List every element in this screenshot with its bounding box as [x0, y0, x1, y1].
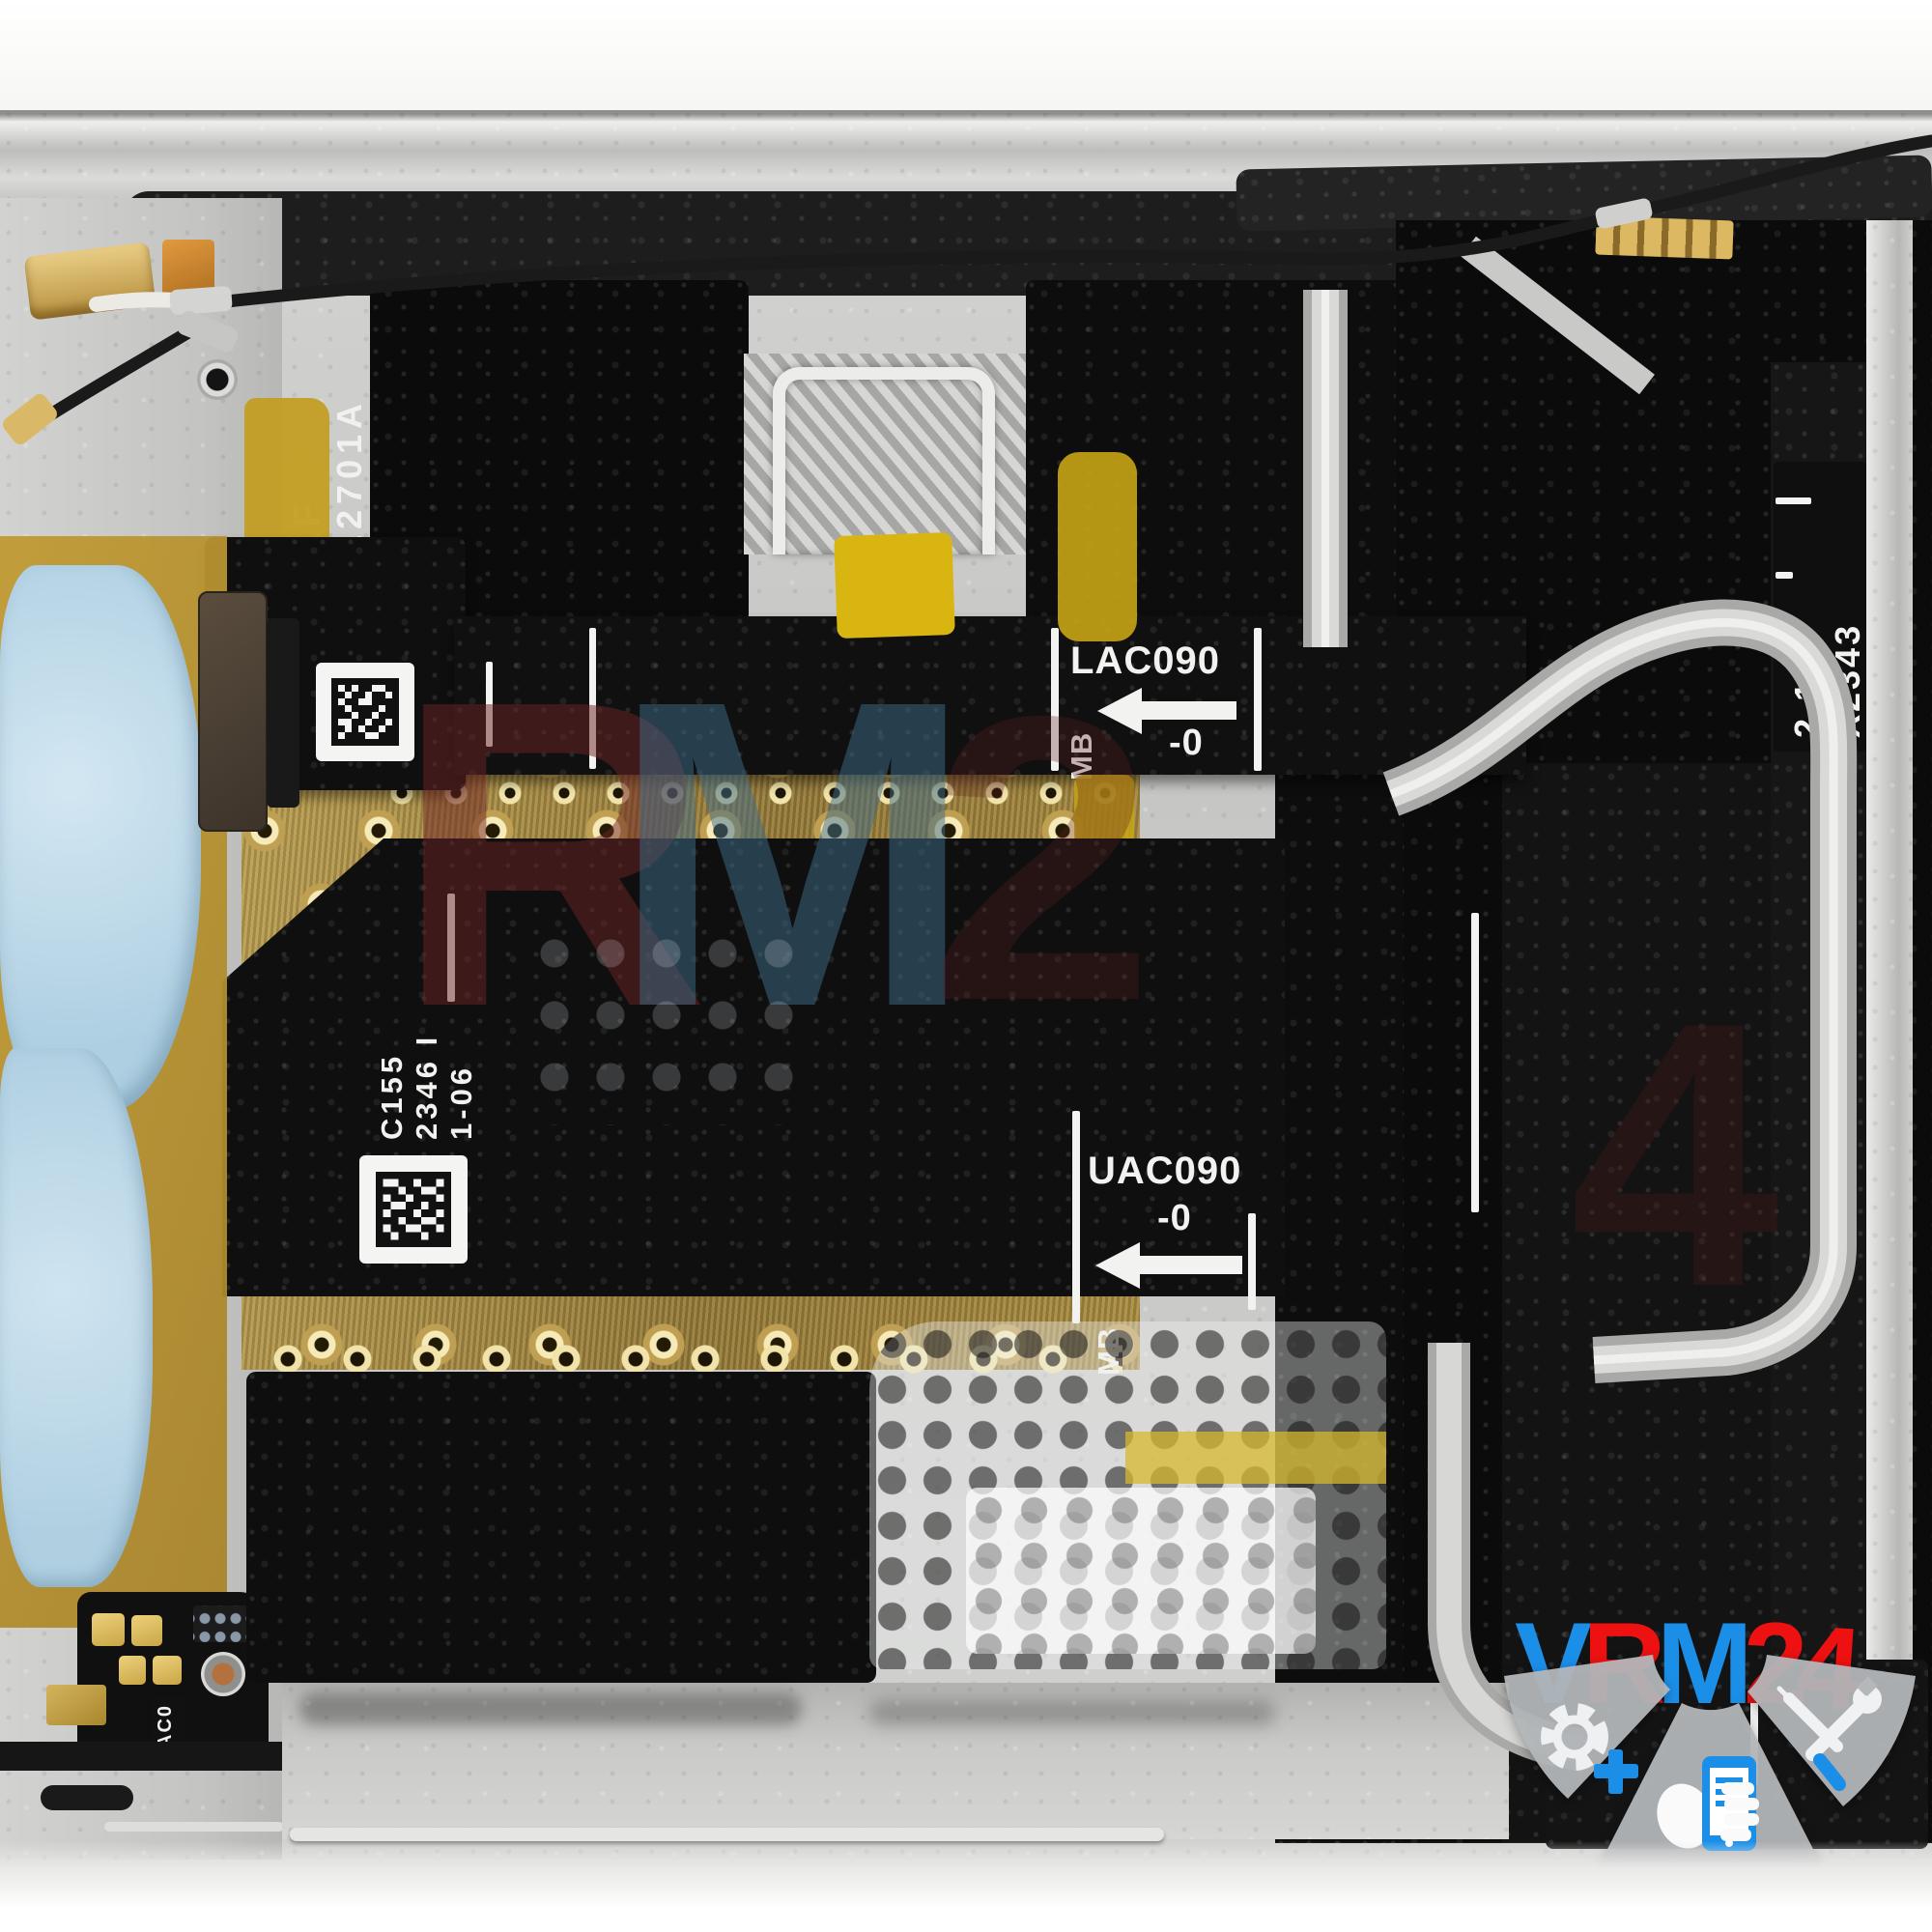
vrm24-logo-fan [0, 0, 1932, 1932]
photo-canvas: LF 12701A 2-14 X2343 [0, 0, 1932, 1932]
top-white-margin [0, 0, 1932, 110]
bottom-white-fade [0, 1841, 1932, 1932]
